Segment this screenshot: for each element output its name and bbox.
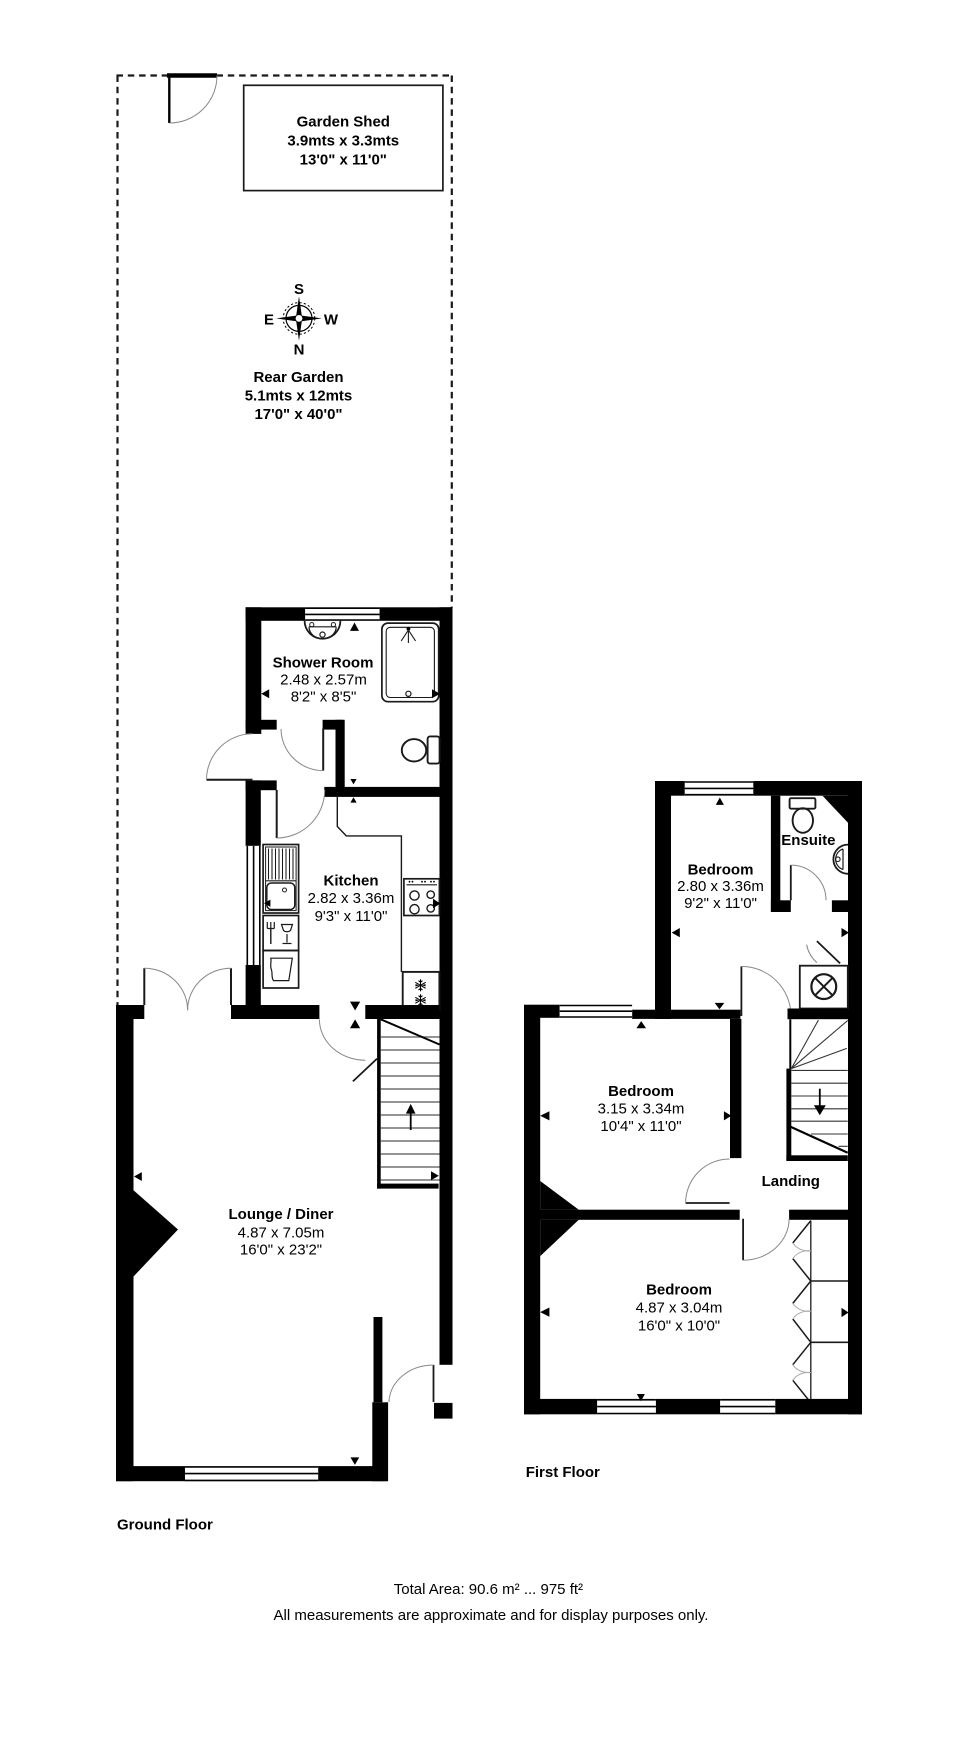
svg-text:Ensuite: Ensuite: [781, 832, 835, 849]
svg-text:Rear Garden: Rear Garden: [253, 369, 343, 386]
svg-text:13'0" x 11'0": 13'0" x 11'0": [300, 152, 387, 169]
svg-text:Shower Room: Shower Room: [273, 654, 374, 671]
svg-text:Bedroom: Bedroom: [608, 1083, 674, 1100]
svg-text:9'3" x 11'0": 9'3" x 11'0": [315, 908, 388, 925]
svg-text:Garden Shed: Garden Shed: [297, 113, 390, 130]
svg-text:8'2" x 8'5": 8'2" x 8'5": [291, 689, 357, 706]
svg-text:S: S: [294, 281, 304, 298]
svg-text:3.15 x 3.34m: 3.15 x 3.34m: [598, 1101, 685, 1118]
svg-text:N: N: [294, 341, 305, 358]
svg-text:9'2" x 11'0": 9'2" x 11'0": [684, 895, 757, 912]
svg-text:2.48 x 2.57m: 2.48 x 2.57m: [280, 672, 367, 689]
svg-text:4.87 x 3.04m: 4.87 x 3.04m: [636, 1300, 723, 1317]
svg-text:Bedroom: Bedroom: [646, 1282, 712, 1299]
svg-text:4.87 x 7.05m: 4.87 x 7.05m: [238, 1225, 325, 1242]
svg-text:5.1mts x 12mts: 5.1mts x 12mts: [245, 388, 353, 405]
svg-text:First Floor: First Floor: [526, 1464, 600, 1481]
svg-text:Total Area: 90.6 m² ... 975 ft: Total Area: 90.6 m² ... 975 ft²: [394, 1581, 583, 1598]
svg-text:3.9mts x 3.3mts: 3.9mts x 3.3mts: [287, 132, 399, 149]
svg-text:16'0" x 10'0": 16'0" x 10'0": [638, 1318, 720, 1335]
svg-text:W: W: [324, 312, 339, 329]
svg-text:All measurements are approxima: All measurements are approximate and for…: [274, 1607, 709, 1624]
svg-text:Lounge / Diner: Lounge / Diner: [229, 1206, 334, 1223]
svg-text:10'4" x 11'0": 10'4" x 11'0": [600, 1118, 681, 1135]
svg-text:16'0" x 23'2": 16'0" x 23'2": [240, 1242, 322, 1259]
svg-text:17'0" x 40'0": 17'0" x 40'0": [254, 406, 342, 423]
svg-text:Bedroom: Bedroom: [688, 862, 754, 879]
svg-text:2.82 x 3.36m: 2.82 x 3.36m: [308, 890, 395, 907]
svg-text:Landing: Landing: [762, 1173, 820, 1190]
svg-text:2.80 x 3.36m: 2.80 x 3.36m: [677, 878, 764, 895]
svg-text:Ground Floor: Ground Floor: [117, 1517, 213, 1534]
svg-text:E: E: [264, 312, 274, 329]
svg-text:Kitchen: Kitchen: [323, 873, 378, 890]
